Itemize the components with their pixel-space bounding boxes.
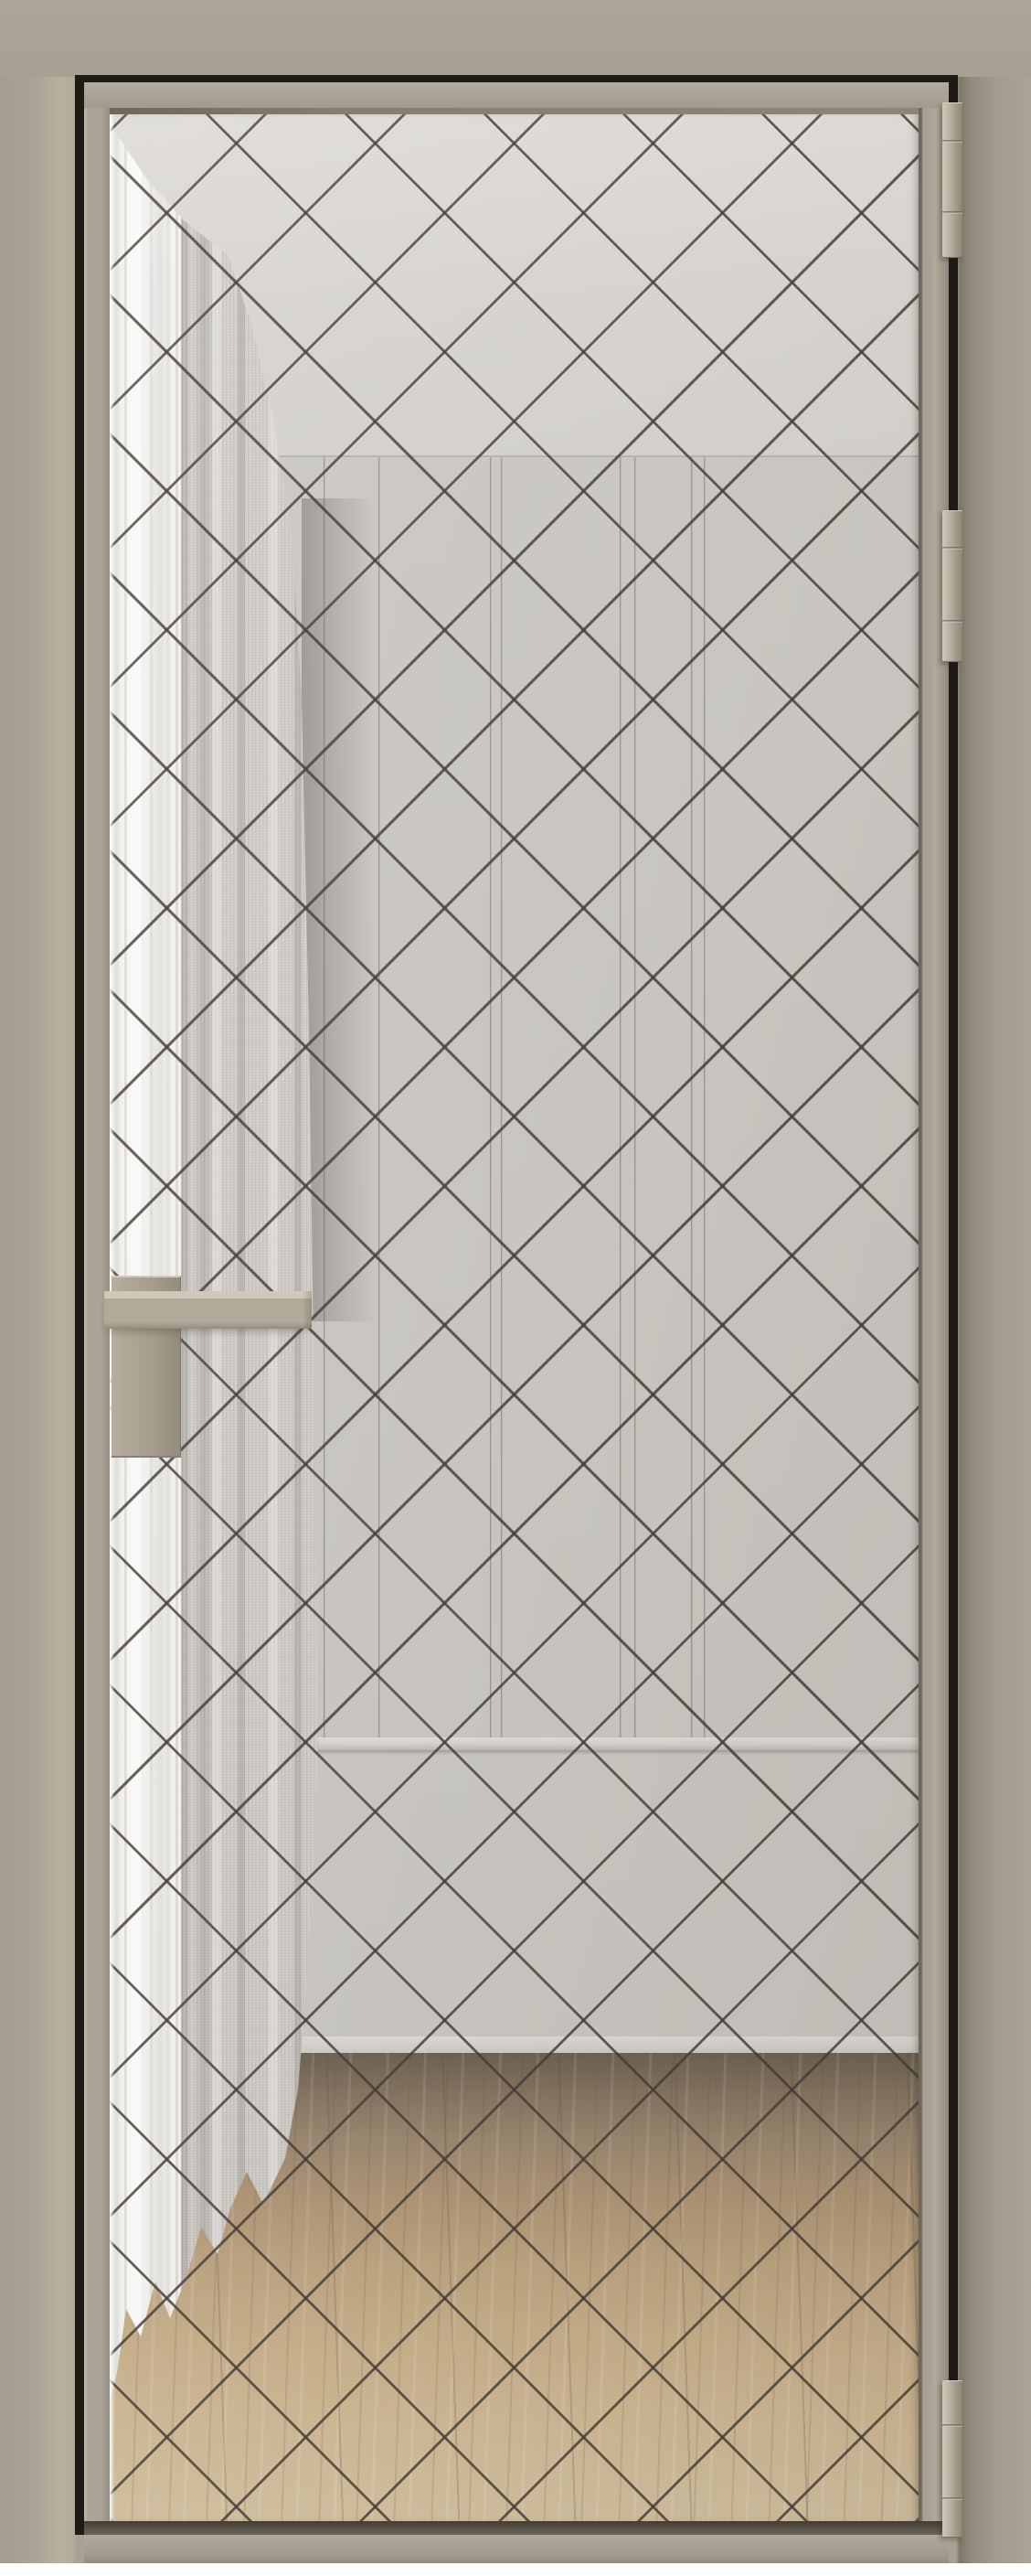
hinge-top: [942, 102, 962, 258]
hinge-middle: [942, 510, 962, 662]
frame-reveal-gap-top: [75, 75, 958, 82]
glazing-bead-line: [110, 108, 919, 114]
hinge-knuckle-joint: [942, 547, 962, 550]
hinge-knuckle-joint: [942, 2497, 962, 2500]
hinge-knuckle-joint: [942, 140, 962, 143]
door-stile-right: [919, 82, 949, 2535]
photo-bottom-margin: [0, 2563, 1031, 2576]
hinge-knuckle-joint: [942, 211, 962, 214]
door-handle-lever: [104, 1291, 312, 1329]
frame-reveal-gap-right: [949, 82, 958, 2535]
door-rail-top: [84, 82, 949, 108]
frame-reveal-gap-left: [75, 75, 84, 2535]
door-bottom-shadow-strip: [84, 2521, 949, 2535]
door-rail-bottom: [84, 2535, 949, 2563]
hinge-knuckle-joint: [942, 2424, 962, 2427]
door-product-photo: [0, 0, 1031, 2576]
hinge-knuckle-joint: [942, 620, 962, 623]
door-casing-head: [0, 0, 1031, 77]
door-handle-lever-end: [303, 1291, 312, 1329]
hinge-bottom: [942, 2380, 962, 2538]
